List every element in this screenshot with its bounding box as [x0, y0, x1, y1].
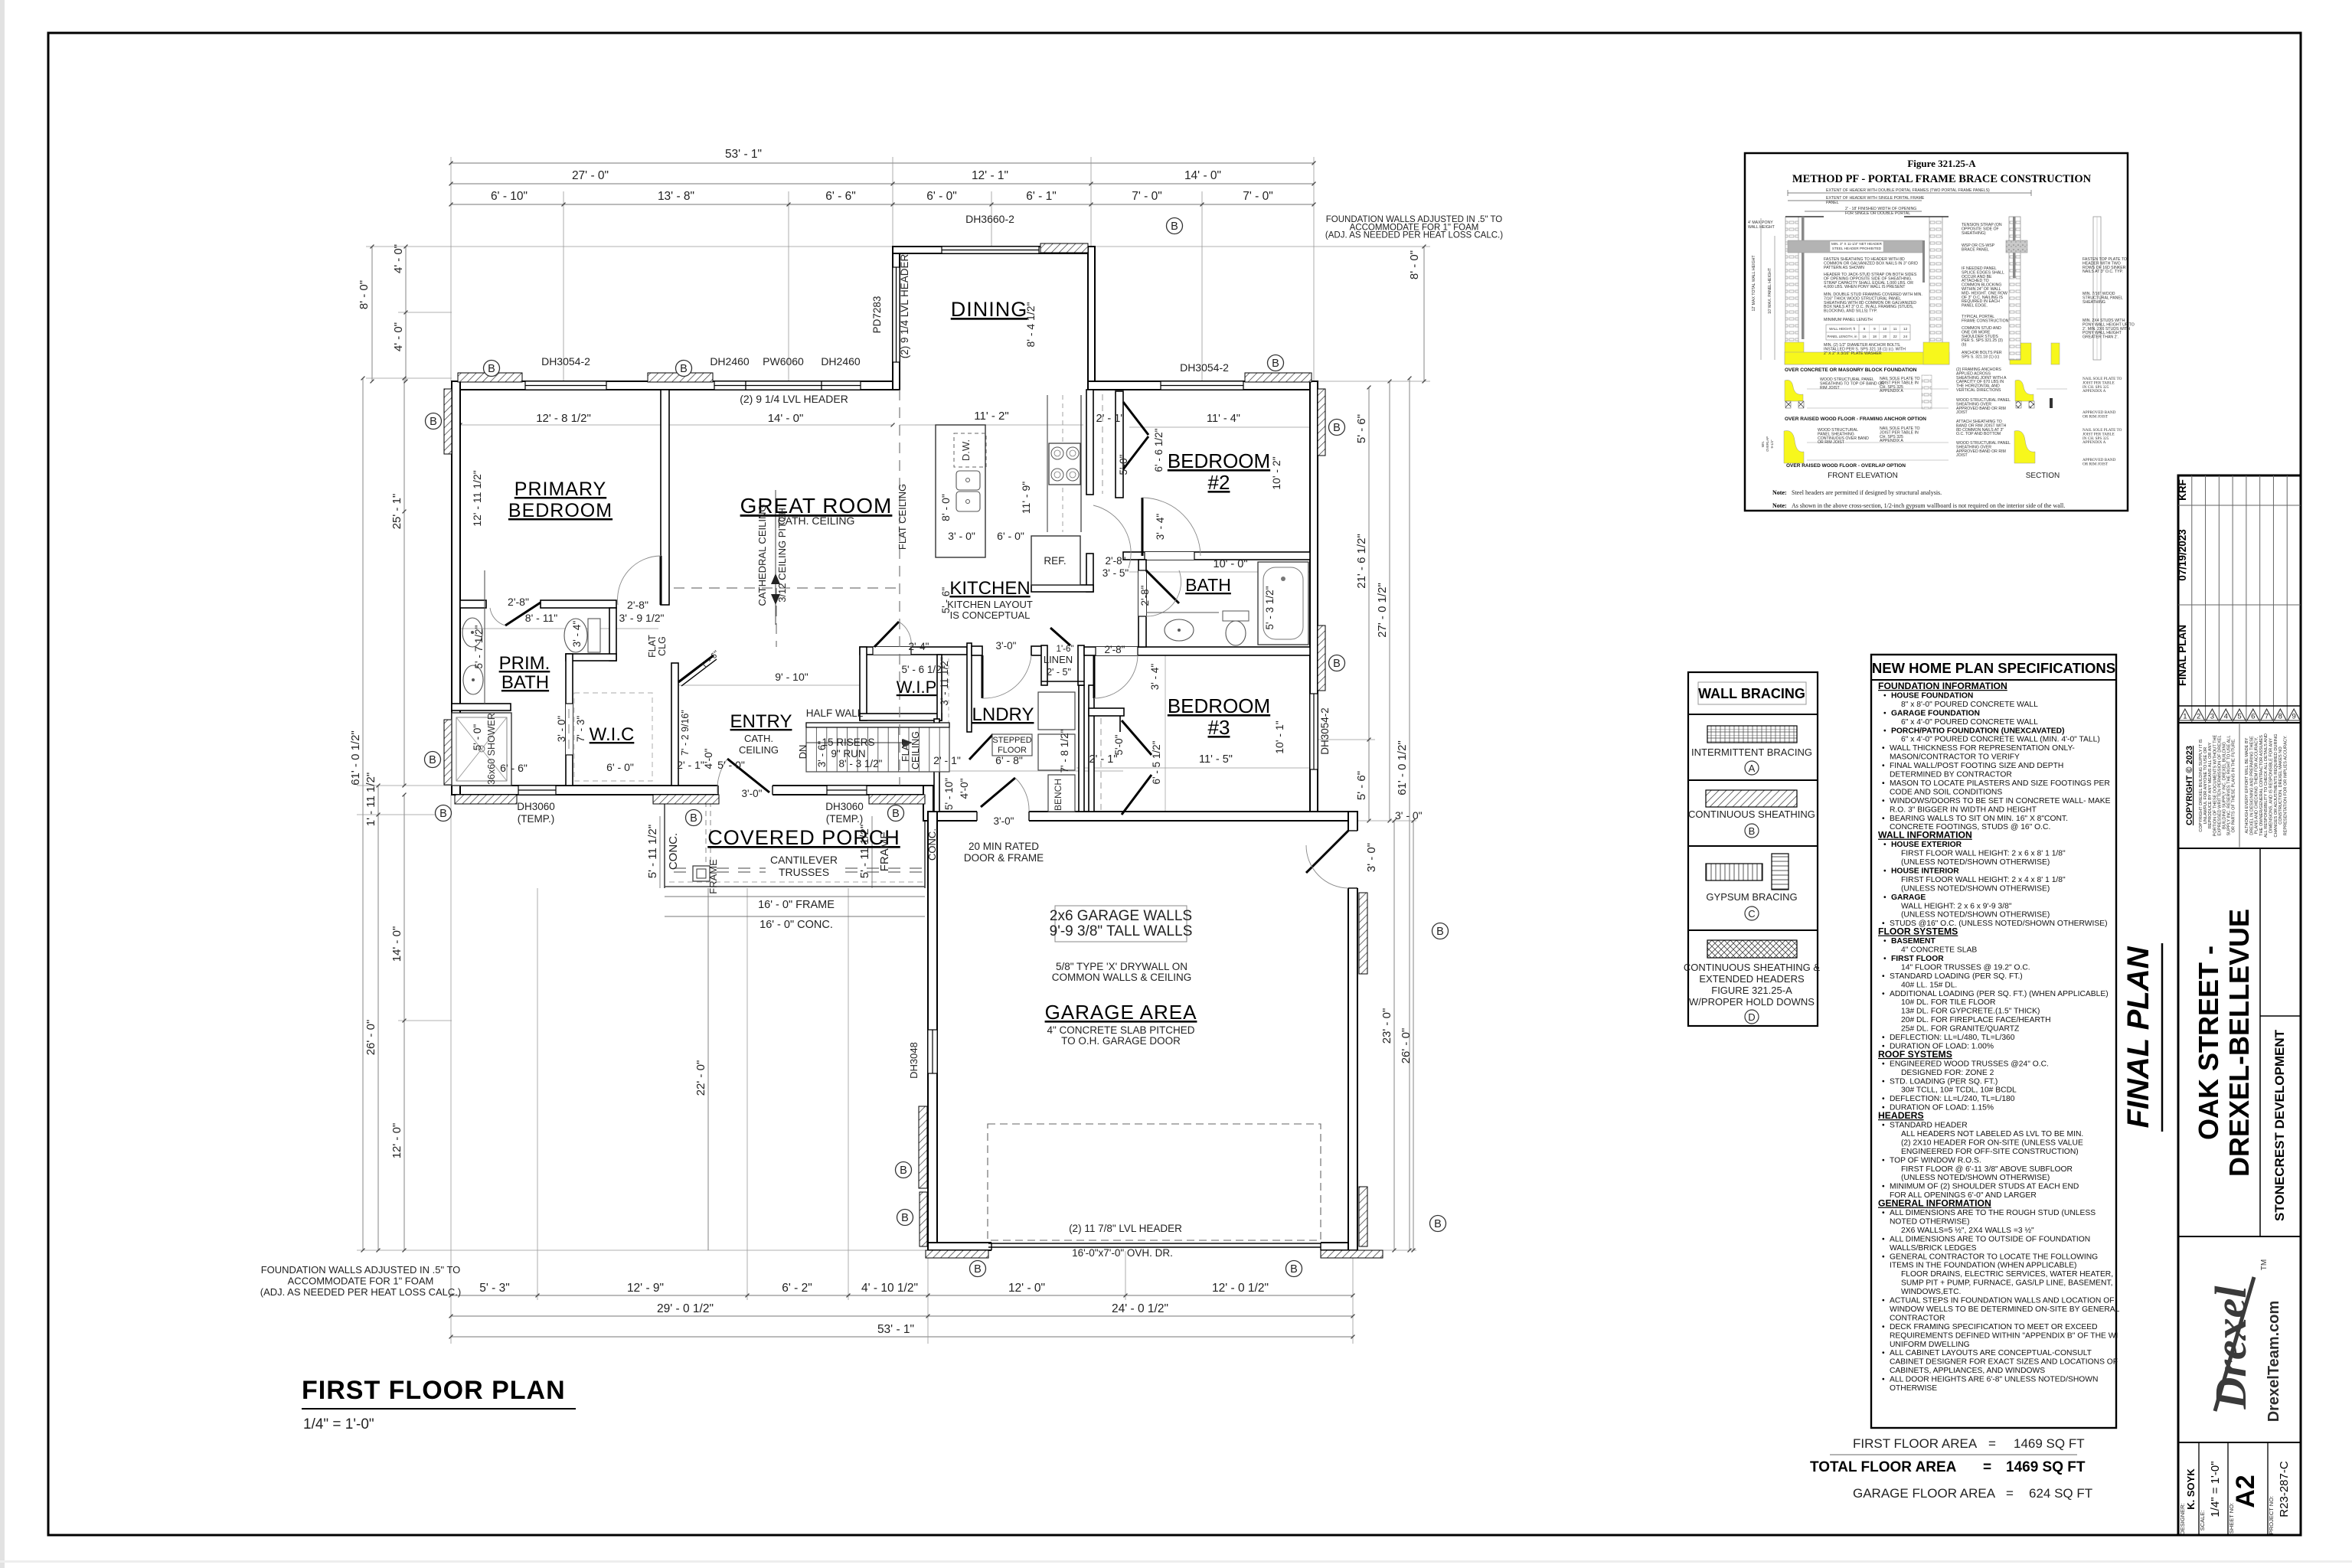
svg-text:5' - 3 1/2": 5' - 3 1/2"	[1264, 586, 1276, 629]
svg-text:(UNLESS NOTED/SHOWN OTHERWISE): (UNLESS NOTED/SHOWN OTHERWISE)	[1901, 858, 2050, 867]
svg-text:JOIST: JOIST	[1956, 410, 1968, 415]
svg-text:GARAGE AREA: GARAGE AREA	[1045, 1001, 1197, 1024]
svg-text:STONECREST DEVELOPMENT: STONECREST DEVELOPMENT	[2272, 1029, 2287, 1221]
svg-text:9-1/4": 9-1/4"	[1770, 439, 1774, 449]
svg-text:CODE AND SOIL CONDITIONS: CODE AND SOIL CONDITIONS	[1890, 788, 2002, 796]
svg-text:TOTAL FLOOR AREA: TOTAL FLOOR AREA	[1810, 1459, 1957, 1475]
svg-text:SCALE:: SCALE:	[2199, 1511, 2206, 1531]
svg-text:2' - 5": 2' - 5"	[1047, 667, 1071, 678]
svg-text:•: •	[1882, 1077, 1885, 1086]
svg-text:MASON/CONTRACTOR TO VERIFY: MASON/CONTRACTOR TO VERIFY	[1890, 753, 2020, 762]
svg-text:•: •	[1882, 1323, 1885, 1331]
svg-text:•: •	[1882, 797, 1885, 805]
svg-text:DEFLECTION: LL=L/240, TL=L/180: DEFLECTION: LL=L/240, TL=L/180	[1890, 1095, 2015, 1103]
svg-text:9'-9 3/8" TALL WALLS: 9'-9 3/8" TALL WALLS	[1050, 923, 1193, 939]
svg-text:FOUNDATION WALLS ADJUSTED IN .: FOUNDATION WALLS ADJUSTED IN .5" TO	[261, 1264, 461, 1276]
svg-text:B: B	[1333, 658, 1341, 670]
svg-text:Note:: Note:	[1772, 489, 1787, 496]
svg-text:MIN.: MIN.	[1761, 441, 1765, 448]
svg-text:FIRST FLOOR WALL HEIGHT: 2 x 4: FIRST FLOOR WALL HEIGHT: 2 x 4 x 8' 1 1/…	[1901, 876, 2066, 884]
svg-text:DEFLECTION: LL=L/480, TL=L/360: DEFLECTION: LL=L/480, TL=L/360	[1890, 1034, 2015, 1042]
svg-text:APPENDIX A: APPENDIX A	[1880, 439, 1903, 443]
svg-text:B: B	[974, 1263, 982, 1276]
svg-text:16' - 0" CONC.: 16' - 0" CONC.	[759, 919, 833, 931]
svg-text:B: B	[892, 808, 900, 820]
svg-text:COMMON WALLS & CEILING: COMMON WALLS & CEILING	[1052, 972, 1192, 983]
svg-text:6" x 4'-0" POURED CONCRETE WAL: 6" x 4'-0" POURED CONCRETE WALL (MIN. 4'…	[1901, 736, 2100, 744]
svg-text:FIRST FLOOR AREA: FIRST FLOOR AREA	[1853, 1436, 1978, 1451]
svg-text:FINAL WALL/POST FOOTING SIZE A: FINAL WALL/POST FOOTING SIZE AND DEPTH	[1890, 762, 2063, 770]
svg-text:12' MAX TOTAL WALL HEIGHT: 12' MAX TOTAL WALL HEIGHT	[1752, 255, 1756, 312]
svg-text:2'-8": 2'-8"	[508, 596, 529, 608]
svg-text:ENTRY: ENTRY	[730, 711, 792, 732]
svg-text:5/8" TYPE 'X' DRYWALL ON: 5/8" TYPE 'X' DRYWALL ON	[1056, 961, 1187, 972]
svg-text:•: •	[1882, 1183, 1885, 1191]
svg-text:C: C	[1748, 908, 1755, 920]
svg-text:DH3048: DH3048	[908, 1042, 920, 1079]
svg-text:53' - 1": 53' - 1"	[877, 1323, 914, 1336]
svg-text:B: B	[1749, 825, 1756, 837]
svg-text:FIGURE 321.25-A: FIGURE 321.25-A	[1711, 985, 1792, 996]
svg-text:DH2460: DH2460	[821, 355, 861, 367]
svg-text:1' - 11 1/2": 1' - 11 1/2"	[364, 773, 377, 826]
svg-text:CABINETS, APPLIANCES, AND WIND: CABINETS, APPLIANCES, AND WINDOWS	[1890, 1367, 2045, 1375]
svg-text:PRIM.: PRIM.	[499, 653, 550, 674]
svg-text:PORCH/PATIO FOUNDATION (UNEXCA: PORCH/PATIO FOUNDATION (UNEXCAVATED)	[1891, 727, 2065, 735]
svg-text:•: •	[1883, 691, 1886, 700]
svg-text:B: B	[1171, 220, 1178, 233]
svg-text:6' - 0": 6' - 0"	[926, 190, 956, 203]
svg-text:5'-0": 5'-0"	[1113, 734, 1125, 755]
svg-text:12' - 0 1/2": 12' - 0 1/2"	[1212, 1282, 1269, 1295]
svg-text:6" x 4'-0" POURED CONCRETE WAL: 6" x 4'-0" POURED CONCRETE WALL	[1901, 718, 2038, 727]
svg-text:9: 9	[2292, 713, 2295, 721]
svg-text:5' - 0": 5' - 0"	[472, 724, 483, 751]
svg-text:DIMENSIONS, AND IS RESPONSIBLE: DIMENSIONS, AND IS RESPONSIBLE FOR ANY	[2269, 738, 2274, 833]
svg-text:D: D	[1748, 1011, 1755, 1023]
svg-text:24: 24	[1903, 335, 1908, 338]
svg-text:(TEMP.): (TEMP.)	[826, 813, 864, 825]
svg-text:ALL DOOR HEIGHTS ARE 6'-8" UNL: ALL DOOR HEIGHTS ARE 6'-8" UNLESS NOTED/…	[1890, 1376, 2098, 1384]
svg-text:CONSTRUCTION. DREXEL MAKES NO: CONSTRUCTION. DREXEL MAKES NO	[2278, 746, 2283, 825]
svg-text:B: B	[901, 1212, 909, 1224]
svg-text:HEADERS: HEADERS	[1878, 1110, 1924, 1121]
svg-text:•: •	[1882, 1376, 1885, 1384]
svg-text:OVER RAISED WOOD FLOOR - OVERL: OVER RAISED WOOD FLOOR - OVERLAP OPTION	[1786, 463, 1906, 469]
svg-text:ROOF SYSTEMS: ROOF SYSTEMS	[1878, 1049, 1952, 1060]
svg-text:3'-0": 3'-0"	[742, 788, 763, 799]
svg-text:TM: TM	[2260, 1259, 2269, 1270]
svg-text:B: B	[430, 416, 437, 428]
svg-text:OVER CONCRETE OR MASONRY BLOCK: OVER CONCRETE OR MASONRY BLOCK FOUNDATIO…	[1785, 367, 1917, 373]
svg-text:CONC.: CONC.	[926, 828, 938, 861]
svg-text:DH3054-2: DH3054-2	[1319, 707, 1331, 755]
svg-text:DrexelTeam.com: DrexelTeam.com	[2265, 1301, 2282, 1423]
svg-text:GYPSUM BRACING: GYPSUM BRACING	[1706, 891, 1797, 903]
svg-text:3' - 0": 3' - 0"	[1395, 809, 1423, 822]
svg-text:STANDARD HEADER: STANDARD HEADER	[1890, 1122, 1968, 1130]
svg-text:8' - 4 1/2": 8' - 4 1/2"	[1024, 302, 1037, 347]
svg-text:•: •	[1882, 779, 1885, 788]
svg-text:4" CONCRETE SLAB: 4" CONCRETE SLAB	[1901, 946, 1977, 955]
svg-text:CABINET DESIGNER FOR EXACT SIZ: CABINET DESIGNER FOR EXACT SIZES AND LOC…	[1890, 1358, 2118, 1367]
svg-text:•: •	[1882, 1235, 1885, 1243]
svg-text:5' - 6": 5' - 6"	[1355, 414, 1368, 443]
svg-text:UNIFORM DWELLING: UNIFORM DWELLING	[1890, 1341, 1970, 1349]
svg-text:TRUSSES: TRUSSES	[779, 866, 829, 878]
svg-text:3' - 4": 3' - 4"	[1149, 664, 1161, 691]
svg-text:3' - 5": 3' - 5"	[1102, 567, 1129, 579]
svg-text:WINDOWS/DOORS TO BE SET IN CON: WINDOWS/DOORS TO BE SET IN CONCRETE WALL…	[1890, 797, 2111, 805]
svg-text:COPYRIGHT © 2023: COPYRIGHT © 2023	[2185, 746, 2194, 825]
svg-text:LNDRY: LNDRY	[972, 704, 1034, 725]
svg-text:13' - 8": 13' - 8"	[658, 190, 694, 203]
svg-text:2' - 1": 2' - 1"	[677, 759, 704, 771]
svg-text:ALTHOUGH EVERY EFFORT WILL BE: ALTHOUGH EVERY EFFORT WILL BE MADE BY	[2245, 737, 2249, 833]
svg-text:•: •	[1882, 972, 1885, 981]
svg-text:DESIGNED FOR: ZONE 2: DESIGNED FOR: ZONE 2	[1901, 1069, 1994, 1077]
svg-text:10: 10	[1883, 327, 1887, 331]
svg-text:8' - 3 1/2": 8' - 3 1/2"	[839, 758, 883, 769]
svg-text:8' - 0": 8' - 0"	[939, 494, 952, 521]
svg-text:(ADJ. AS NEEDED PER HEAT LOSS: (ADJ. AS NEEDED PER HEAT LOSS CALC.)	[260, 1286, 461, 1298]
svg-text:5'-0": 5'-0"	[1118, 454, 1129, 475]
svg-text:CLG: CLG	[657, 636, 668, 656]
svg-text:27' - 0": 27' - 0"	[572, 169, 609, 182]
svg-text:BEARING WALLS TO SIT ON MIN. 1: BEARING WALLS TO SIT ON MIN. 16" X 8"CON…	[1890, 815, 2068, 823]
svg-text:BASEMENT: BASEMENT	[1891, 937, 1935, 946]
svg-text:B: B	[1333, 422, 1341, 434]
svg-text:OAK STREET -: OAK STREET -	[2193, 946, 2224, 1140]
svg-text:LINEN: LINEN	[1044, 654, 1073, 665]
svg-text:EXTENT OF HEADER WITH SINGLE P: EXTENT OF HEADER WITH SINGLE PORTAL FRAM…	[1826, 196, 1925, 201]
svg-text:WALL THICKNESS FOR REPRESENTAT: WALL THICKNESS FOR REPRESENTATION ONLY-	[1890, 744, 2075, 753]
svg-text:REF.: REF.	[1044, 555, 1066, 567]
svg-text:6' - 8": 6' - 8"	[995, 754, 1023, 766]
svg-text:(TEMP.): (TEMP.)	[518, 813, 555, 825]
svg-text:DH3054-2: DH3054-2	[1180, 361, 1229, 374]
svg-text:B: B	[1434, 1218, 1442, 1230]
svg-text:2'-8": 2'-8"	[1106, 555, 1126, 567]
svg-text:REQUIREMENTS DEFINED WITHIN "A: REQUIREMENTS DEFINED WITHIN "APPENDIX B"…	[1890, 1331, 2118, 1340]
svg-text:14' - 0": 14' - 0"	[768, 412, 804, 425]
svg-text:WALLS/BRICK LEDGES: WALLS/BRICK LEDGES	[1890, 1244, 1977, 1253]
svg-text:B: B	[900, 1165, 907, 1177]
svg-text:3' - 9 1/2": 3' - 9 1/2"	[619, 612, 664, 624]
svg-text:DH3054-2: DH3054-2	[541, 355, 590, 367]
svg-text:9' - 10": 9' - 10"	[775, 671, 808, 683]
svg-text:3' - 0": 3' - 0"	[556, 716, 567, 743]
svg-text:1469 SQ FT: 1469 SQ FT	[2014, 1436, 2085, 1451]
svg-text:CONC.: CONC.	[667, 833, 680, 870]
svg-text:2" X 2" X 3/16" PLATE WASHER: 2" X 2" X 3/16" PLATE WASHER	[1824, 351, 1882, 356]
svg-text:OR RIM JOIST: OR RIM JOIST	[1818, 440, 1845, 445]
svg-text:ALL RESPONSIBILITY TO CHECK AL: ALL RESPONSIBILITY TO CHECK ALL DETAILS …	[2264, 733, 2269, 838]
svg-text:2' - 1": 2' - 1"	[1096, 413, 1125, 425]
svg-text:ENGINEERED FOR OFF-SITE CONSTR: ENGINEERED FOR OFF-SITE CONSTRUCTION)	[1901, 1148, 2079, 1156]
svg-text:ACCOMMODATE FOR 1" FOAM: ACCOMMODATE FOR 1" FOAM	[288, 1276, 434, 1287]
svg-text:DN: DN	[797, 745, 808, 759]
svg-text:10' - 2": 10' - 2"	[1270, 456, 1282, 489]
svg-text:HALF WALL: HALF WALL	[806, 707, 864, 719]
svg-text:07/19/2023: 07/19/2023	[2177, 529, 2188, 581]
svg-text:WALL INFORMATION: WALL INFORMATION	[1878, 830, 1972, 841]
svg-text:22' - 0": 22' - 0"	[694, 1060, 707, 1096]
svg-text:K. SOYK: K. SOYK	[2185, 1468, 2197, 1510]
svg-text:B: B	[439, 808, 447, 820]
svg-text:3/12 CEILING PITCH: 3/12 CEILING PITCH	[776, 508, 788, 603]
svg-text:6' - 6": 6' - 6"	[500, 762, 528, 774]
svg-text:2' - 1": 2' - 1"	[933, 754, 961, 766]
svg-text:26' - 0": 26' - 0"	[364, 1020, 377, 1056]
svg-text:•: •	[1882, 1253, 1885, 1261]
svg-text:B: B	[1272, 358, 1279, 370]
svg-text:3' - 4": 3' - 4"	[1155, 514, 1166, 541]
svg-text:O.C. TOP AND BOTTOM: O.C. TOP AND BOTTOM	[1956, 432, 2001, 436]
svg-text:THE OWNER/GENERAL CONTRACTOR A: THE OWNER/GENERAL CONTRACTOR ASSUMES	[2259, 735, 2264, 836]
svg-text:11' - 9": 11' - 9"	[1020, 482, 1032, 514]
svg-text:9: 9	[1873, 327, 1876, 331]
svg-text:SUPPLY INC. RESERVES THE RIGHT: SUPPLY INC. RESERVES THE RIGHT TO USE AL…	[2227, 735, 2232, 835]
svg-text:1: 1	[2183, 713, 2187, 721]
svg-text:6' - 0": 6' - 0"	[997, 530, 1024, 542]
svg-text:COPYRIGHT DREXEL BUILDING SUPP: COPYRIGHT DREXEL BUILDING SUPPLY IT IS	[2199, 739, 2203, 832]
svg-text:6' - 10": 6' - 10"	[491, 190, 528, 203]
svg-text:7' - 8 1/2": 7' - 8 1/2"	[1059, 729, 1070, 773]
svg-text:7: 7	[2265, 713, 2269, 721]
svg-text:(2) 11 7/8" LVL HEADER: (2) 11 7/8" LVL HEADER	[1069, 1223, 1182, 1234]
svg-text:#3: #3	[1208, 716, 1230, 739]
svg-text:ITEMS IN THE FOUNDATION (WHEN: ITEMS IN THE FOUNDATION (WHEN APPLICABLE…	[1890, 1262, 2077, 1270]
svg-text:BLOCKING, AND SILLS) TYP.: BLOCKING, AND SILLS) TYP.	[1824, 309, 1877, 314]
svg-text:20# DL. FOR FIREPLACE FACE/HEA: 20# DL. FOR FIREPLACE FACE/HEARTH	[1901, 1016, 2051, 1024]
svg-text:5' - 11 1/2": 5' - 11 1/2"	[858, 825, 871, 878]
svg-text:R.O. 3" BIGGER IN WIDTH AND HE: R.O. 3" BIGGER IN WIDTH AND HEIGHT	[1890, 805, 2037, 814]
svg-text:10' - 1": 10' - 1"	[1273, 720, 1285, 753]
svg-text:8' - 0": 8' - 0"	[358, 280, 371, 309]
svg-text:GARAGE FLOOR AREA: GARAGE FLOOR AREA	[1853, 1486, 1996, 1501]
svg-text:•: •	[1882, 1349, 1885, 1357]
svg-text:EXTENDED HEADERS: EXTENDED HEADERS	[1699, 973, 1805, 985]
svg-text:11' - 4": 11' - 4"	[1207, 413, 1240, 425]
svg-text:15 RISERS: 15 RISERS	[822, 737, 874, 748]
svg-text:BEDROOM: BEDROOM	[508, 500, 612, 521]
svg-text:OR RIM JOIST: OR RIM JOIST	[2082, 414, 2109, 419]
svg-text:CATH.: CATH.	[744, 733, 773, 744]
svg-text:NAILS AT 3" O.C. TYP.: NAILS AT 3" O.C. TYP.	[2082, 269, 2123, 274]
svg-text:3' - 4": 3' - 4"	[571, 621, 583, 648]
svg-text:4" CONCRETE SLAB PITCHED: 4" CONCRETE SLAB PITCHED	[1047, 1024, 1194, 1036]
svg-text:14' - 0": 14' - 0"	[390, 926, 403, 962]
svg-text:CANTILEVER: CANTILEVER	[770, 854, 838, 866]
svg-text:27' - 0 1/2": 27' - 0 1/2"	[1376, 583, 1389, 638]
svg-text:(2) 9 1/4 LVL HEADER: (2) 9 1/4 LVL HEADER	[740, 393, 848, 405]
svg-text:R23-287-C: R23-287-C	[2278, 1461, 2291, 1517]
svg-text:61' - 0 1/2": 61' - 0 1/2"	[1396, 740, 1409, 795]
svg-text:HOUSE INTERIOR: HOUSE INTERIOR	[1891, 867, 1959, 875]
svg-text:EXPRESSED WRITTEN PERMISSION O: EXPRESSED WRITTEN PERMISSION OF DREXEL	[2217, 735, 2222, 835]
svg-text:FOR SINGLE OR DOUBLE PORTAL: FOR SINGLE OR DOUBLE PORTAL	[1845, 211, 1910, 216]
svg-text:4' - 0": 4' - 0"	[392, 244, 405, 273]
svg-text:HOUSE FOUNDATION: HOUSE FOUNDATION	[1891, 691, 1973, 700]
svg-text:STEPPED: STEPPED	[992, 736, 1031, 745]
svg-text:BRACE PANEL: BRACE PANEL	[1962, 247, 1989, 252]
svg-text:8: 8	[1864, 327, 1866, 331]
svg-text:CATHEDRAL CEILING: CATHEDRAL CEILING	[756, 505, 768, 606]
svg-text:12' - 11 1/2": 12' - 11 1/2"	[471, 470, 483, 527]
svg-text:EXTENT OF HEADER WITH DOUBLE P: EXTENT OF HEADER WITH DOUBLE PORTAL FRAM…	[1826, 188, 1990, 193]
svg-text:11: 11	[1893, 327, 1897, 331]
svg-text:•: •	[1883, 841, 1886, 849]
svg-text:•: •	[1883, 893, 1886, 902]
svg-text:FRAME: FRAME	[878, 831, 891, 872]
svg-text:B: B	[429, 754, 436, 766]
svg-text:ALL HEADERS NOT LABELED AS LVL: ALL HEADERS NOT LABELED AS LVL TO BE MIN…	[1901, 1130, 2083, 1138]
svg-text:DINING: DINING	[951, 298, 1028, 321]
svg-text:WINDOW WELLS TO BE DETERMINED: WINDOW WELLS TO BE DETERMINED ON-SITE BY…	[1890, 1305, 2120, 1314]
svg-text:BATH: BATH	[501, 672, 549, 693]
svg-text:•: •	[1882, 815, 1885, 823]
svg-text:OVERLAP: OVERLAP	[1766, 436, 1769, 452]
svg-text:8' - 11": 8' - 11"	[525, 612, 557, 624]
svg-text:ACTUAL STEPS IN FOUNDATION WAL: ACTUAL STEPS IN FOUNDATION WALLS AND LOC…	[1890, 1297, 2115, 1305]
svg-text:24' - 0 1/2": 24' - 0 1/2"	[1112, 1302, 1168, 1315]
svg-text:CONTRACTOR: CONTRACTOR	[1890, 1314, 1945, 1322]
svg-text:ADDITIONAL LOADING (PER SQ. FT: ADDITIONAL LOADING (PER SQ. FT.) (WHEN A…	[1890, 990, 2109, 998]
svg-text:1'-6": 1'-6"	[1057, 645, 1074, 654]
svg-text:W.I.C: W.I.C	[590, 724, 635, 745]
svg-text:As shown in the above cross-se: As shown in the above cross-section, 1/2…	[1792, 502, 2065, 509]
svg-text:14" FLOOR TRUSSES @ 19.2" O.C.: 14" FLOOR TRUSSES @ 19.2" O.C.	[1901, 963, 2030, 972]
svg-text:5' - 11 1/2": 5' - 11 1/2"	[646, 825, 659, 878]
svg-text:7' - 2 9/16": 7' - 2 9/16"	[680, 710, 691, 756]
svg-text:PER S. SPS 321.25 (3): PER S. SPS 321.25 (3)	[1962, 338, 2003, 343]
svg-text:OR RIM JOIST: OR RIM JOIST	[2082, 462, 2109, 466]
svg-text:COVERED PORCH: COVERED PORCH	[707, 826, 900, 849]
svg-text:(2) 2X10 HEADER FOR ON-SITE (U: (2) 2X10 HEADER FOR ON-SITE (UNLESS VALU…	[1901, 1138, 2083, 1147]
svg-text:PLANS AND CHECKING THEM FOR AC: PLANS AND CHECKING THEM FOR ACCURACY,	[2255, 737, 2259, 834]
svg-text:14' - 0": 14' - 0"	[1184, 169, 1221, 182]
svg-text:GREATER THAN 2'.: GREATER THAN 2'.	[2082, 335, 2118, 340]
svg-text:5: 5	[2237, 713, 2241, 721]
svg-text:•: •	[1882, 762, 1885, 770]
svg-text:FINAL PLAN: FINAL PLAN	[2177, 625, 2188, 686]
svg-text:25' - 1": 25' - 1"	[390, 494, 403, 530]
svg-text:6' - 1": 6' - 1"	[1026, 190, 1056, 203]
svg-text:•: •	[1882, 1209, 1885, 1217]
svg-text:(UNLESS NOTED/SHOWN OTHERWISE): (UNLESS NOTED/SHOWN OTHERWISE)	[1901, 1174, 2050, 1182]
svg-text:•: •	[1882, 1060, 1885, 1068]
svg-text:GENERAL CONTRACTOR TO LOCATE T: GENERAL CONTRACTOR TO LOCATE THE FOLLOWI…	[1890, 1253, 2098, 1261]
svg-text:FIRST FLOOR @ 6'-11 3/8" ABOV: FIRST FLOOR @ 6'-11 3/8" ABOVE SUBFLOOR	[1901, 1165, 2073, 1174]
svg-text:6' - 2": 6' - 2"	[782, 1282, 812, 1295]
svg-text:APPENDIX A: APPENDIX A	[2082, 440, 2106, 445]
svg-text:PATTERN AS SHOWN: PATTERN AS SHOWN	[1824, 266, 1864, 270]
svg-text:7' - 3": 7' - 3"	[575, 716, 586, 743]
svg-text:GENERAL INFORMATION: GENERAL INFORMATION	[1878, 1198, 1991, 1209]
svg-text:11' - 2": 11' - 2"	[974, 410, 1008, 423]
svg-text:5' - 10": 5' - 10"	[943, 778, 955, 810]
svg-text:MINIMUM OF (2) SHOULDER STUDS: MINIMUM OF (2) SHOULDER STUDS AT EACH EN…	[1890, 1183, 2079, 1191]
svg-text:FLOOR SYSTEMS: FLOOR SYSTEMS	[1878, 926, 1958, 937]
svg-text:•: •	[1882, 744, 1885, 753]
svg-text:•: •	[1883, 937, 1886, 946]
svg-text:6: 6	[2251, 713, 2255, 721]
svg-text:MINIMUM PANEL LENGTH: MINIMUM PANEL LENGTH	[1824, 318, 1873, 322]
svg-text:4'-0": 4'-0"	[703, 748, 714, 769]
svg-text:2'-8": 2'-8"	[1105, 644, 1125, 655]
svg-text:12' - 0": 12' - 0"	[390, 1123, 403, 1159]
svg-text:624 SQ FT: 624 SQ FT	[2029, 1486, 2092, 1501]
svg-text:61' - 0 1/2": 61' - 0 1/2"	[349, 730, 362, 786]
svg-text:13# DL. FOR GYPCRETE.(1.5" THI: 13# DL. FOR GYPCRETE.(1.5" THICK)	[1901, 1008, 2040, 1016]
svg-text:(UNLESS NOTED/SHOWN OTHERWISE): (UNLESS NOTED/SHOWN OTHERWISE)	[1901, 911, 2050, 920]
svg-text:•: •	[1883, 727, 1886, 735]
svg-text:REPRODUCE BY ANY MEANS ALL OR: REPRODUCE BY ANY MEANS ALL OR ANY	[2208, 743, 2213, 829]
svg-text:8: 8	[2278, 713, 2282, 721]
svg-text:STD. LOADING (PER SQ. FT.): STD. LOADING (PER SQ. FT.)	[1890, 1077, 1998, 1086]
svg-text:•: •	[1882, 990, 1885, 998]
svg-text:4'-0": 4'-0"	[959, 778, 970, 799]
svg-text:MIN. 3" X 11-1/4" NET HEADER: MIN. 3" X 11-1/4" NET HEADER	[1831, 242, 1883, 246]
svg-text:B: B	[488, 363, 495, 375]
svg-text:BEDROOM: BEDROOM	[1168, 694, 1270, 717]
svg-text:12' - 8 1/2": 12' - 8 1/2"	[536, 412, 591, 425]
svg-text:A: A	[1749, 763, 1756, 774]
svg-text:6' - 0": 6' - 0"	[606, 761, 634, 773]
svg-text:PORTION OF THESE DOCUMENTS WIT: PORTION OF THESE DOCUMENTS WITHOUT THE	[2213, 734, 2217, 836]
svg-text:ENGINEERED WOOD TRUSSES @24" O: ENGINEERED WOOD TRUSSES @24" O.C.	[1890, 1060, 2049, 1068]
svg-text:5' - 0": 5' - 0"	[717, 759, 745, 771]
svg-text:5' - 3": 5' - 3"	[479, 1282, 509, 1295]
svg-text:10' - 0": 10' - 0"	[1214, 558, 1248, 570]
svg-text:2'-8": 2'-8"	[1139, 585, 1151, 606]
svg-text:4' - 0": 4' - 0"	[392, 322, 405, 351]
svg-text:6' - 6 1/2": 6' - 6 1/2"	[1153, 428, 1165, 472]
svg-text:6' - 5 1/2": 6' - 5 1/2"	[1151, 740, 1162, 784]
svg-text:3'-0": 3'-0"	[994, 815, 1014, 827]
svg-text:CHANGES OR ADJUSTMENTS REQUIRE: CHANGES OR ADJUSTMENTS REQUIRED DURING	[2274, 734, 2278, 838]
svg-text:2: 2	[2197, 713, 2200, 721]
svg-text:7' - 0": 7' - 0"	[1243, 190, 1272, 203]
svg-text:20 MIN RATED: 20 MIN RATED	[969, 841, 1039, 852]
svg-text:7' - 0": 7' - 0"	[1132, 190, 1161, 203]
svg-text:FIRST FLOOR: FIRST FLOOR	[1891, 955, 1944, 963]
svg-text:KRF: KRF	[2177, 479, 2188, 501]
svg-text:NEW HOME PLAN SPECIFICATIONS: NEW HOME PLAN SPECIFICATIONS	[1872, 660, 2115, 676]
svg-text:BATH: BATH	[1185, 575, 1231, 595]
svg-text:KITCHEN: KITCHEN	[949, 578, 1030, 599]
svg-text:CONTINUOUS SHEATHING: CONTINUOUS SHEATHING	[1688, 808, 1815, 820]
svg-text:D.W.: D.W.	[960, 439, 972, 461]
svg-text:METHOD PF - PORTAL FRAME BRACE: METHOD PF - PORTAL FRAME BRACE CONSTRUCT…	[1792, 173, 2092, 185]
svg-text:(2) 9 1/4 LVL HEADER: (2) 9 1/4 LVL HEADER	[899, 253, 910, 358]
svg-text:WALL HEIGHT: WALL HEIGHT	[1748, 225, 1775, 230]
svg-text:TO O.H. GARAGE DOOR: TO O.H. GARAGE DOOR	[1061, 1035, 1181, 1047]
svg-text:30# TCLL, 10# TCDL, 10# BCDL: 30# TCLL, 10# TCDL, 10# BCDL	[1901, 1086, 2017, 1095]
svg-text:2x6 GARAGE WALLS: 2x6 GARAGE WALLS	[1050, 908, 1192, 924]
svg-text:(ADJ. AS NEEDED PER HEAT LOSS: (ADJ. AS NEEDED PER HEAT LOSS CALC.)	[1325, 231, 1503, 240]
svg-text:FLAT CEILING: FLAT CEILING	[897, 484, 908, 550]
svg-text:PANEL LENGTH, in: PANEL LENGTH, in	[1828, 335, 1857, 338]
svg-text:4: 4	[2224, 713, 2228, 721]
svg-text:1/4" = 1'-0": 1/4" = 1'-0"	[303, 1416, 374, 1432]
svg-text:PW6060: PW6060	[763, 355, 804, 367]
svg-text:23' - 0": 23' - 0"	[1380, 1008, 1393, 1044]
svg-text:APPENDIX A: APPENDIX A	[1880, 389, 1903, 394]
svg-text:4' - 10 1/2": 4' - 10 1/2"	[861, 1282, 918, 1295]
svg-text:20: 20	[1883, 335, 1887, 338]
